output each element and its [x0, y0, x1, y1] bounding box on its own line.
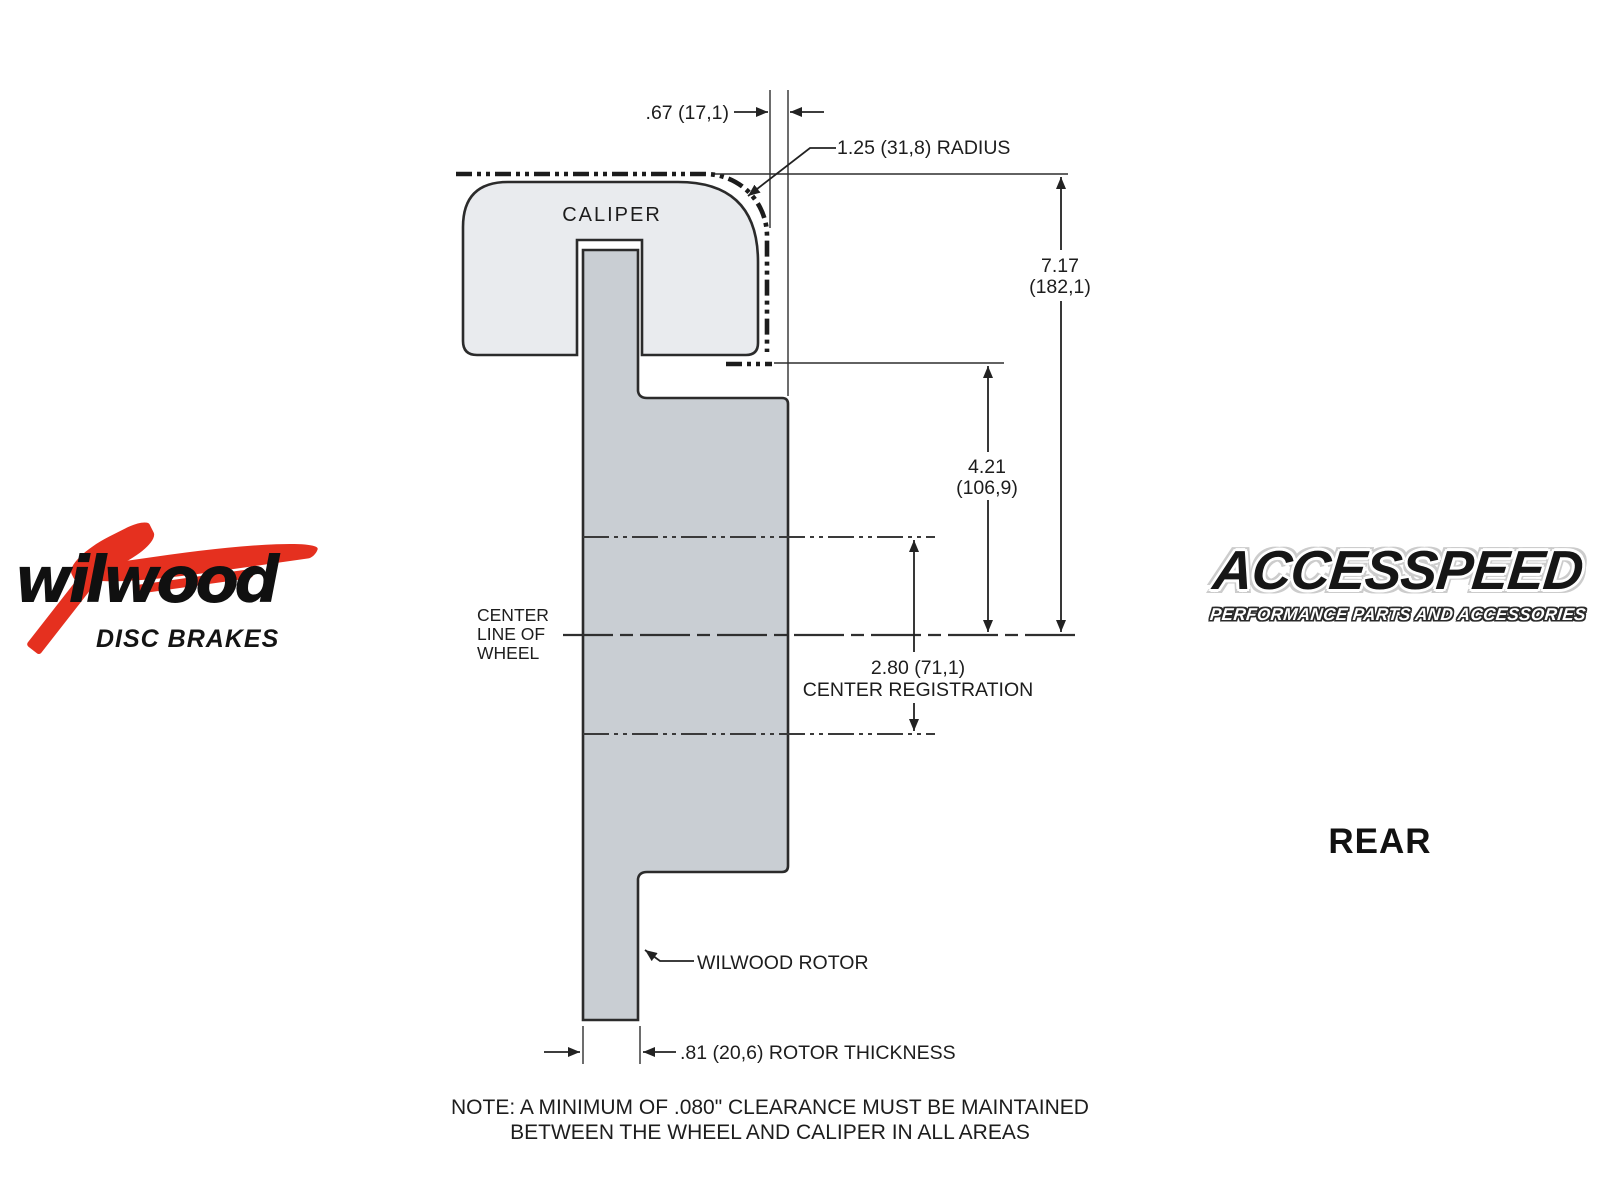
centerline-label-1: CENTER: [477, 605, 549, 625]
rotor-label: WILWOOD ROTOR: [697, 952, 869, 974]
dim-421-value: 4.21: [968, 456, 1006, 478]
dim-gap-label: .67 (17,1): [646, 102, 729, 124]
accesspeed-wordmark: ACCESSPEED: [1197, 540, 1599, 601]
rotor-leader: [645, 950, 694, 961]
centerline-label-2: LINE OF: [477, 624, 545, 644]
wilwood-logo: wilwood DISC BRAKES: [14, 537, 324, 659]
note-line-2: BETWEEN THE WHEEL AND CALIPER IN ALL ARE…: [510, 1121, 1030, 1144]
note-line-1: NOTE: A MINIMUM OF .080" CLEARANCE MUST …: [451, 1096, 1089, 1119]
position-label: REAR: [1320, 822, 1440, 862]
dim-280-label: CENTER REGISTRATION: [803, 679, 1033, 701]
dim-717-value: 7.17: [1041, 255, 1079, 277]
dim-radius-label: 1.25 (31,8) RADIUS: [837, 137, 1010, 159]
dim-717-mm: (182,1): [1029, 276, 1091, 298]
accesspeed-tagline: PERFORMANCE PARTS AND ACCESSORIES: [1199, 605, 1597, 625]
accesspeed-logo: ACCESSPEED PERFORMANCE PARTS AND ACCESSO…: [1200, 540, 1596, 625]
dim-rotor-thickness-label: .81 (20,6) ROTOR THICKNESS: [680, 1042, 956, 1064]
radius-leader: [748, 148, 836, 196]
dim-421-mm: (106,9): [956, 477, 1018, 499]
wilwood-tagline: DISC BRAKES: [96, 625, 279, 654]
wilwood-wordmark: wilwood: [14, 549, 275, 613]
dim-280-value: 2.80 (71,1): [871, 657, 965, 679]
brake-dimension-diagram: CALIPER .67 (17,1) 1.25 (31,8) RADIUS 7.…: [0, 0, 1600, 1200]
centerline-label-3: WHEEL: [477, 643, 540, 663]
caliper-label: CALIPER: [562, 204, 662, 226]
